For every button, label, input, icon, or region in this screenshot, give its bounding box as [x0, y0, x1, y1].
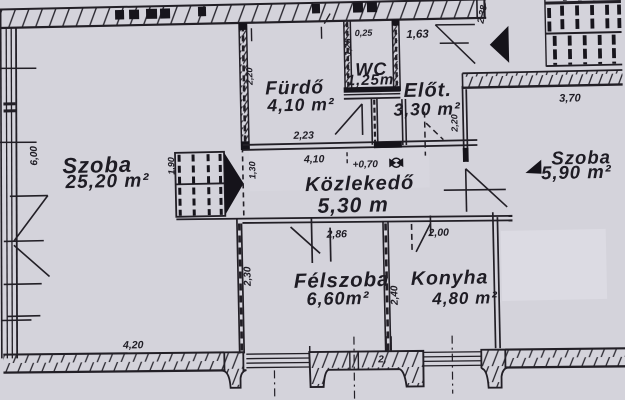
svg-text:2,20: 2,20: [449, 114, 459, 133]
svg-text:5,30 m: 5,30 m: [317, 193, 389, 217]
svg-text:3,70: 3,70: [559, 92, 582, 104]
svg-text:4,80 m²: 4,80 m²: [431, 288, 498, 308]
svg-text:1,25m: 1,25m: [347, 71, 395, 89]
svg-text:2,30: 2,30: [242, 266, 253, 287]
svg-text:0,25: 0,25: [355, 28, 374, 38]
svg-text:1,90: 1,90: [166, 157, 176, 175]
svg-text:2,: 2,: [377, 354, 386, 365]
svg-text:2,23: 2,23: [292, 129, 314, 141]
svg-text:2,40: 2,40: [389, 285, 400, 306]
svg-text:6,00: 6,00: [29, 146, 40, 166]
svg-text:1,63: 1,63: [406, 29, 429, 41]
svg-text:4,10 m²: 4,10 m²: [266, 94, 335, 115]
svg-text:6,60m²: 6,60m²: [306, 288, 369, 309]
svg-text:2,20: 2,20: [244, 67, 254, 86]
svg-text:Közlekedő: Közlekedő: [305, 172, 414, 196]
svg-text:1,30: 1,30: [247, 161, 257, 179]
svg-text:2,86: 2,86: [325, 228, 347, 240]
svg-text:4,20: 4,20: [122, 339, 144, 351]
svg-text:5,90 m²: 5,90 m²: [541, 161, 612, 183]
svg-text:Konyha: Konyha: [411, 266, 489, 290]
svg-text:4,10: 4,10: [303, 153, 325, 165]
svg-text:+0,70: +0,70: [353, 159, 379, 171]
svg-text:1,25: 1,25: [343, 37, 353, 56]
svg-text:25,20 m²: 25,20 m²: [64, 170, 149, 193]
